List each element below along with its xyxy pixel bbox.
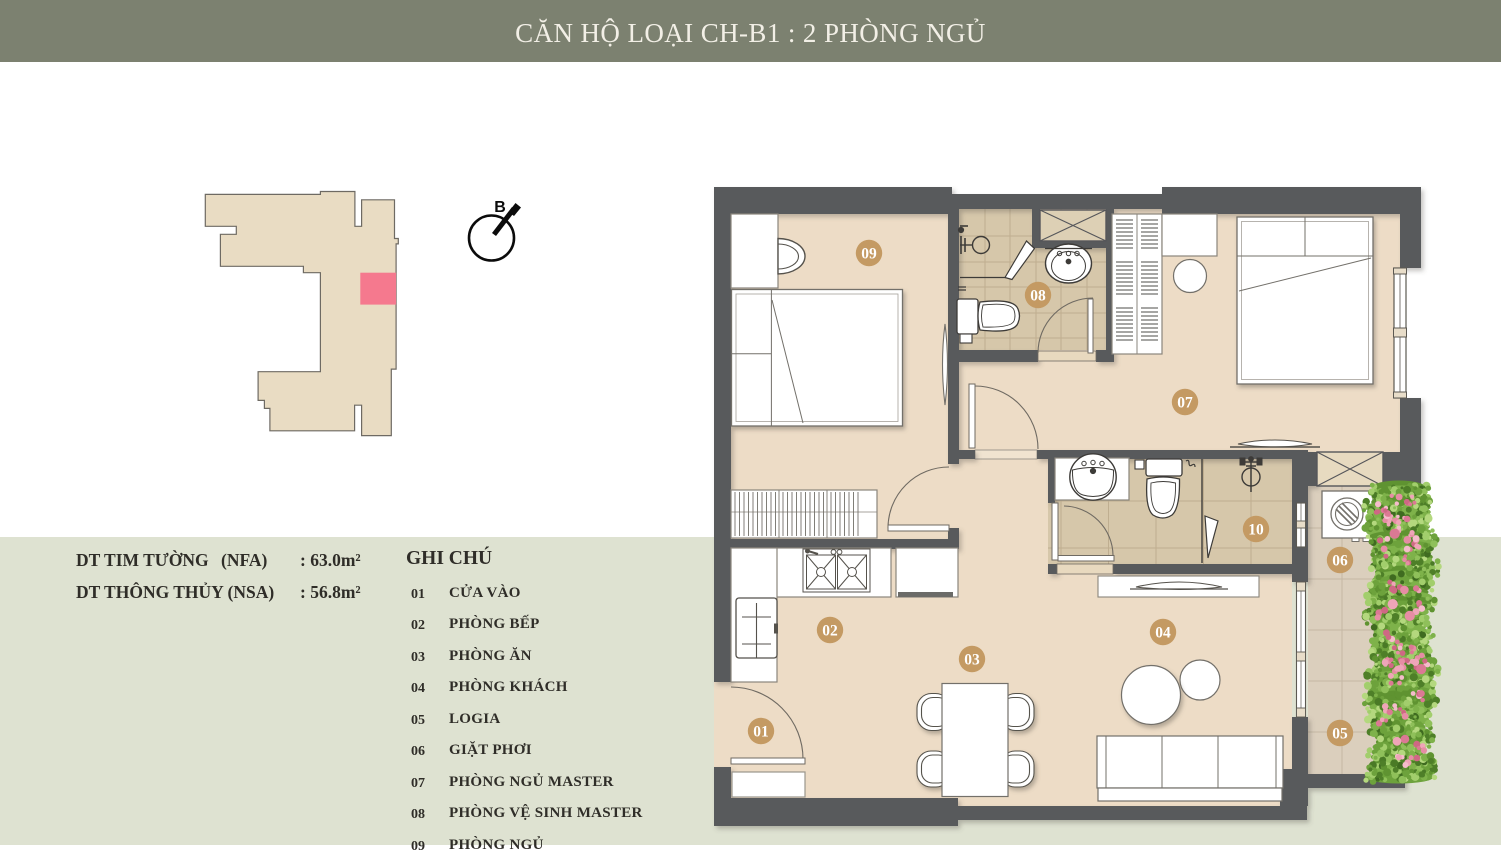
svg-text:09: 09: [861, 246, 877, 263]
svg-text:03: 03: [964, 652, 980, 669]
svg-text:08: 08: [1030, 288, 1046, 305]
svg-text:02: 02: [822, 623, 838, 640]
svg-text:04: 04: [1155, 625, 1171, 642]
svg-text:05: 05: [1332, 726, 1348, 743]
svg-text:B: B: [494, 199, 506, 216]
svg-text:06: 06: [1332, 553, 1348, 570]
svg-text:07: 07: [1177, 395, 1193, 412]
svg-text:10: 10: [1248, 522, 1264, 539]
svg-text:01: 01: [753, 724, 769, 741]
